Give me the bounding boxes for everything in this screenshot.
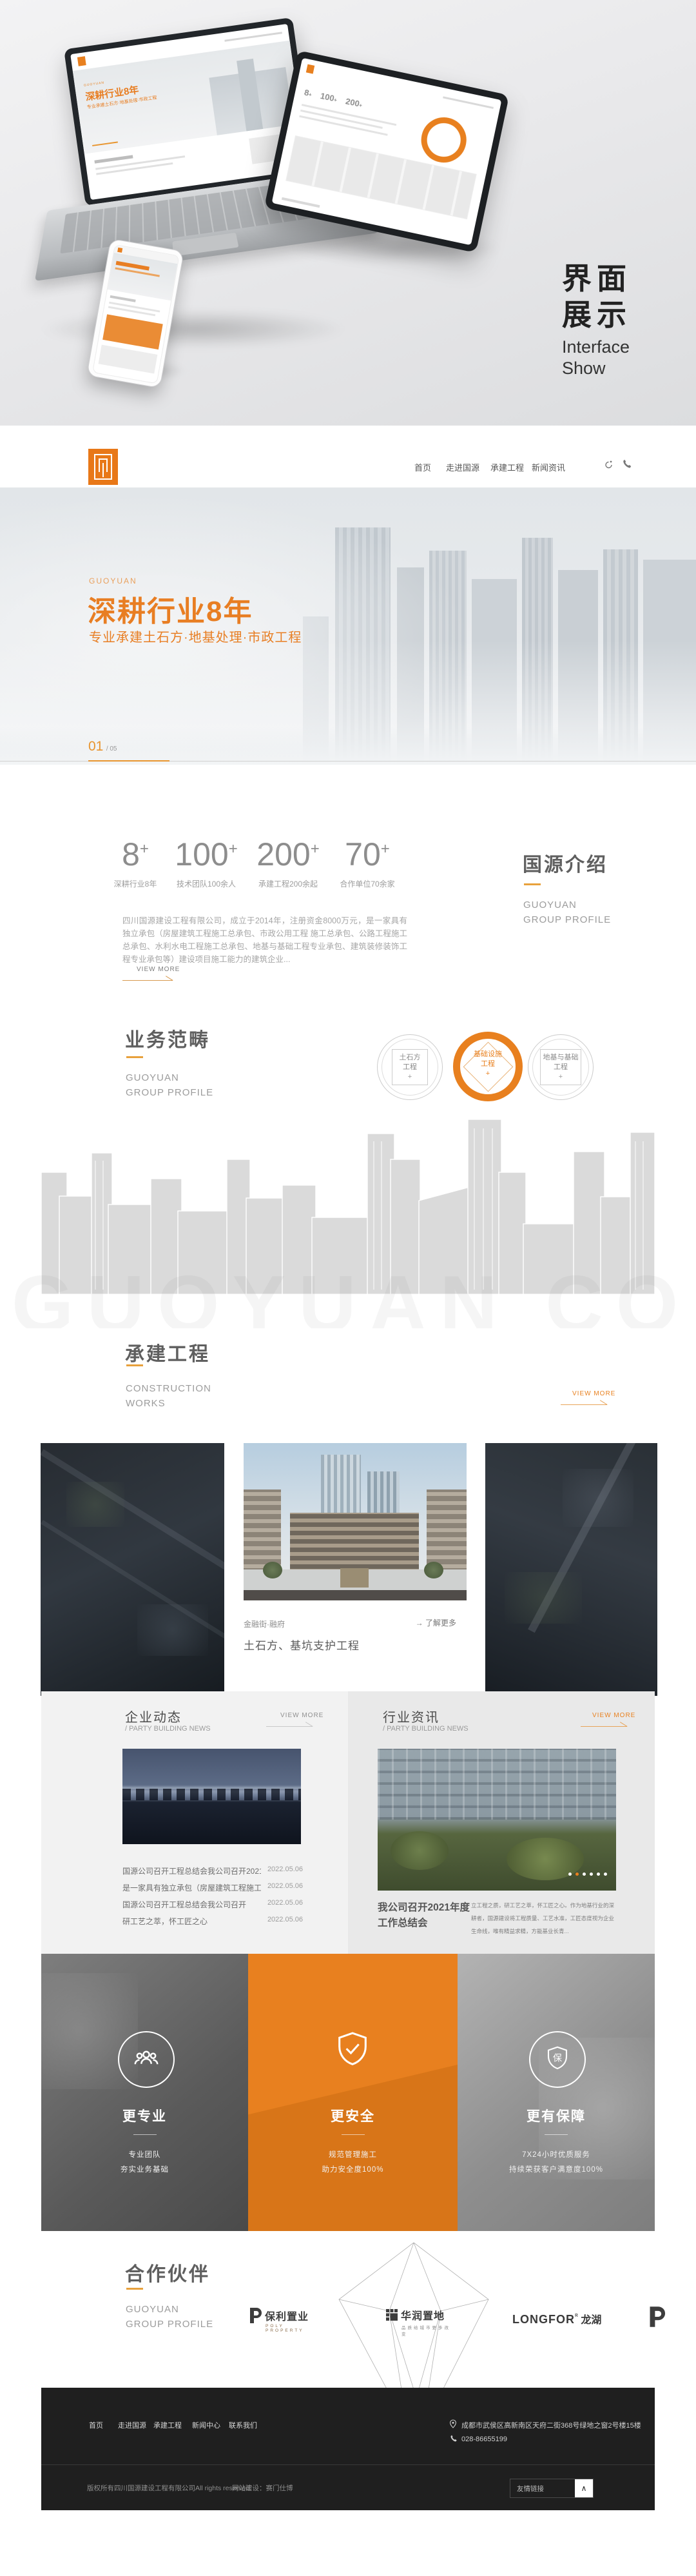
hero-page-total: / 05 [106, 745, 117, 752]
partners-title: 合作伙伴 [125, 2258, 210, 2286]
business-item-label: 地基与基础 [543, 1054, 579, 1061]
page: GUOYUAN 深耕行业8年 专业承建土石方·地基处理·市政工程 [0, 0, 696, 2576]
footer-nav-contact[interactable]: 联系我们 [229, 2420, 257, 2430]
stat-label: 技术团队100余人 [161, 878, 251, 889]
feature-guarantee: 保 更有保障 7X24小时优质服务 持续荣获客户满意度100% [458, 1954, 655, 2231]
intro-subtitle-en-2: GROUP PROFILE [523, 912, 611, 927]
hero-eyebrow: GUOYUAN [89, 576, 137, 585]
friend-links-label: 友情链接 [517, 2484, 544, 2493]
nav-item-about[interactable]: 走进国源 [446, 461, 479, 473]
news-left-view-more-arrow[interactable] [266, 1726, 313, 1727]
stat-col: 200+ 承建工程200余起 [243, 836, 333, 889]
hero-subtitle: 专业承建土石方·地基处理·市政工程 [89, 627, 302, 645]
feature-divider [545, 2134, 568, 2135]
news-panel-company: 企业动态 / PARTY BUILDING NEWS VIEW MORE 国源公… [41, 1691, 348, 1954]
projects-title: 承建工程 [125, 1338, 210, 1366]
news-section: 企业动态 / PARTY BUILDING NEWS VIEW MORE 国源公… [0, 1691, 696, 1954]
news-right-view-more[interactable]: VIEW MORE [592, 1712, 635, 1719]
business-item-label: 土石方 [400, 1054, 421, 1061]
project-image-featured[interactable] [244, 1443, 467, 1600]
hero-pagination: 01 / 05 [88, 739, 117, 754]
partner-logo-poly[interactable]: 保利置业 POLY PROPERTY [248, 2307, 319, 2333]
showcase-title-en-2: Show [562, 358, 632, 379]
stat-suffix: + [381, 840, 390, 858]
news-list-item[interactable]: 是一家具有独立承包（房屋建筑工程施工总承包2022.05.06 [122, 1882, 303, 1893]
news-panel-industry: 行业资讯 / PARTY BUILDING NEWS VIEW MORE 我公司… [348, 1691, 655, 1954]
laptop-hero-eyebrow: GUOYUAN [84, 81, 105, 87]
stat-label: 合作单位70余家 [322, 878, 412, 889]
news-left-title: 企业动态 [125, 1707, 182, 1726]
feature-line: 7X24小时优质服务 [458, 2149, 655, 2159]
stat-suffix: + [229, 840, 238, 858]
news-left-image[interactable] [122, 1749, 301, 1844]
news-list-item[interactable]: 国源公司召开工程总结会我公司召开2021年2022.05.06 [122, 1865, 303, 1876]
features-section: 更专业 专业团队 夯实业务基础 更安全 规范管理施工 助力安全度100% [0, 1954, 696, 2231]
intro-view-more-arrow[interactable] [122, 980, 173, 981]
partner-logo-longfor[interactable]: LONGFORʀ 龙湖 [512, 2311, 601, 2326]
projects-subtitle-en-1: CONSTRUCTION [126, 1381, 211, 1396]
project-card-featured[interactable]: 金融街·融府 → 了解更多 土石方、基坑支护工程 [244, 1443, 467, 1691]
feature-safety: 更安全 规范管理施工 助力安全度100% [248, 1954, 458, 2231]
feature-title: 更专业 [41, 2106, 248, 2125]
news-right-view-more-arrow[interactable] [581, 1726, 627, 1727]
footer-phone-icon [449, 2435, 458, 2443]
hero-banner: GUOYUAN 深耕行业8年 专业承建土石方·地基处理·市政工程 01 / 05 [0, 487, 696, 765]
mockup-section: GUOYUAN 深耕行业8年 专业承建土石方·地基处理·市政工程 [0, 0, 696, 426]
projects-title-dash [126, 1364, 143, 1366]
news-right-image[interactable] [378, 1749, 616, 1891]
news-article-title[interactable]: 我公司召开2021年度 工作总结会 [378, 1900, 470, 1931]
news-right-subtitle: / PARTY BUILDING NEWS [383, 1725, 469, 1733]
footer-phone: 028-86655199 [461, 2435, 507, 2443]
partner-logo-partial [646, 2306, 696, 2328]
projects-section: 承建工程 CONSTRUCTION WORKS VIEW MORE [0, 1328, 696, 1691]
stat-label: 承建工程200余起 [243, 878, 333, 889]
partners-subtitle-en-1: GUOYUAN [126, 2302, 179, 2317]
footer-nav-about[interactable]: 走进国源 [118, 2420, 146, 2430]
phone-icon[interactable] [621, 459, 632, 470]
news-list-item[interactable]: 国源公司召开工程总结会我公司召开2022.05.06 [122, 1899, 303, 1910]
footer-nav-home[interactable]: 首页 [89, 2420, 103, 2430]
business-item-earthwork[interactable]: 土石方工程+ [377, 1034, 443, 1100]
projects-view-more[interactable]: VIEW MORE [572, 1390, 615, 1397]
feature-divider [133, 2134, 157, 2135]
hero-page-current: 01 [88, 739, 103, 754]
business-item-infrastructure[interactable]: 基础设施工程+ [453, 1032, 523, 1101]
footer-address: 成都市武侯区高新南区天府二街368号绿地之窗2号楼15楼 [461, 2420, 641, 2430]
friend-links-select[interactable]: 友情链接 ∧ [510, 2479, 594, 2498]
stat-value: 8 [122, 836, 140, 872]
stat-col: 100+ 技术团队100余人 [161, 836, 251, 889]
arrow-right-icon: → [416, 1618, 423, 1627]
showcase-title-en-1: Interface [562, 337, 632, 358]
service-icon[interactable] [603, 459, 614, 470]
showcase-title-cn-1: 界面 [562, 261, 632, 297]
partner-logo-cr-land[interactable]: 华润置地 品质给城市更多改变 [385, 2307, 456, 2337]
nav-item-projects[interactable]: 承建工程 [490, 461, 524, 473]
business-section: 业务范畴 GUOYUAN GROUP PROFILE 土石方工程+ 基础设施工程… [0, 1006, 696, 1328]
site-header: 首页 走进国源 承建工程 新闻资讯 [0, 426, 696, 487]
stat-suffix: + [311, 840, 320, 858]
feature-divider [342, 2134, 365, 2135]
tablet-orange-ring [417, 113, 470, 167]
intro-section: 8+ 深耕行业8年 100+ 技术团队100余人 200+ 承建工程200余起 … [0, 765, 696, 1006]
business-subtitle-en-1: GUOYUAN [126, 1070, 179, 1085]
feature-line: 持续荣获客户满意度100% [458, 2164, 655, 2174]
nav-item-news[interactable]: 新闻资讯 [532, 461, 565, 473]
poly-glyph-icon [248, 2307, 262, 2324]
feature-professional: 更专业 专业团队 夯实业务基础 [41, 1954, 248, 2231]
showcase-title-cn-2: 展示 [562, 297, 632, 333]
intro-paragraph: 四川国源建设工程有限公司，成立于2014年，注册资金8000万元，是一家具有独立… [122, 914, 407, 966]
watermark-text: GUOYUAN CONS [12, 1259, 696, 1328]
business-title: 业务范畴 [125, 1024, 210, 1052]
footer-copyright: 版权所有四川国源建设工程有限公司All rights reserved. [87, 2483, 251, 2493]
partners-subtitle-en-2: GROUP PROFILE [126, 2317, 213, 2332]
project-more-link[interactable]: → 了解更多 [416, 1617, 456, 1628]
feature-title: 更安全 [248, 2106, 458, 2125]
project-desc: 土石方、基坑支护工程 [244, 1637, 360, 1653]
business-title-dash [126, 1056, 143, 1058]
projects-view-more-arrow[interactable] [561, 1404, 607, 1405]
svg-text:保: 保 [553, 2053, 562, 2063]
feature-line: 夯实业务基础 [41, 2164, 248, 2174]
news-left-subtitle: / PARTY BUILDING NEWS [125, 1725, 211, 1733]
feature-line: 规范管理施工 [248, 2149, 458, 2159]
footer-built-by[interactable]: 网站建设：赛门仕博 [232, 2483, 293, 2493]
showcase-caption: 界面 展示 Interface Show [562, 261, 632, 379]
business-item-foundation[interactable]: 地基与基础工程+ [528, 1034, 594, 1100]
partners-section: 合作伙伴 GUOYUAN GROUP PROFILE 保利置业 POLY PRO… [0, 2231, 696, 2388]
carousel-dots[interactable] [565, 1867, 607, 1879]
site-footer: 首页 走进国源 承建工程 新闻中心 联系我们 成都市武侯区高新南区天府二街368… [41, 2388, 655, 2510]
project-name: 金融街·融府 [244, 1618, 285, 1629]
news-list-item[interactable]: 研工艺之萃，怀工匠之心2022.05.06 [122, 1916, 303, 1927]
location-icon [449, 2419, 457, 2428]
footer-divider [41, 2464, 655, 2465]
shield-bao-icon: 保 [529, 2031, 586, 2088]
hero-title: 深耕行业8年 [88, 588, 253, 629]
project-image-left[interactable] [41, 1443, 224, 1696]
stat-suffix: + [140, 840, 149, 858]
intro-title: 国源介绍 [523, 849, 608, 877]
shield-check-icon [333, 2030, 372, 2072]
business-item-label: 基础设施 [474, 1050, 502, 1058]
cr-glyph-icon [385, 2308, 398, 2321]
nav-item-home[interactable]: 首页 [414, 461, 431, 473]
footer-nav-newscenter[interactable]: 新闻中心 [192, 2420, 220, 2430]
collapse-button[interactable]: ∧ [575, 2479, 593, 2497]
logo[interactable] [88, 449, 118, 485]
project-image-right[interactable] [485, 1443, 657, 1696]
stat-value: 100 [175, 836, 228, 872]
news-article-desc: 立工程之质，研工艺之萃，怀工匠之心。作为地基行业的深耕者，国源建设将工程质量、工… [471, 1899, 614, 1938]
intro-view-more[interactable]: VIEW MORE [137, 966, 180, 973]
footer-nav-projects[interactable]: 承建工程 [153, 2420, 182, 2430]
feature-title: 更有保障 [458, 2106, 655, 2125]
stat-value: 70 [345, 836, 381, 872]
feature-line: 专业团队 [41, 2149, 248, 2159]
news-right-title: 行业资讯 [383, 1707, 440, 1726]
hero-pagination-bar[interactable] [88, 760, 169, 762]
intro-subtitle-en-1: GUOYUAN [523, 898, 577, 912]
team-icon [118, 2031, 175, 2088]
partners-title-dash [126, 2288, 143, 2290]
intro-title-dash [524, 883, 541, 885]
stat-value: 200 [256, 836, 310, 872]
news-left-view-more[interactable]: VIEW MORE [280, 1712, 324, 1719]
feature-line: 助力安全度100% [248, 2164, 458, 2174]
stat-col: 70+ 合作单位70余家 [322, 836, 412, 889]
projects-subtitle-en-2: WORKS [126, 1396, 166, 1411]
